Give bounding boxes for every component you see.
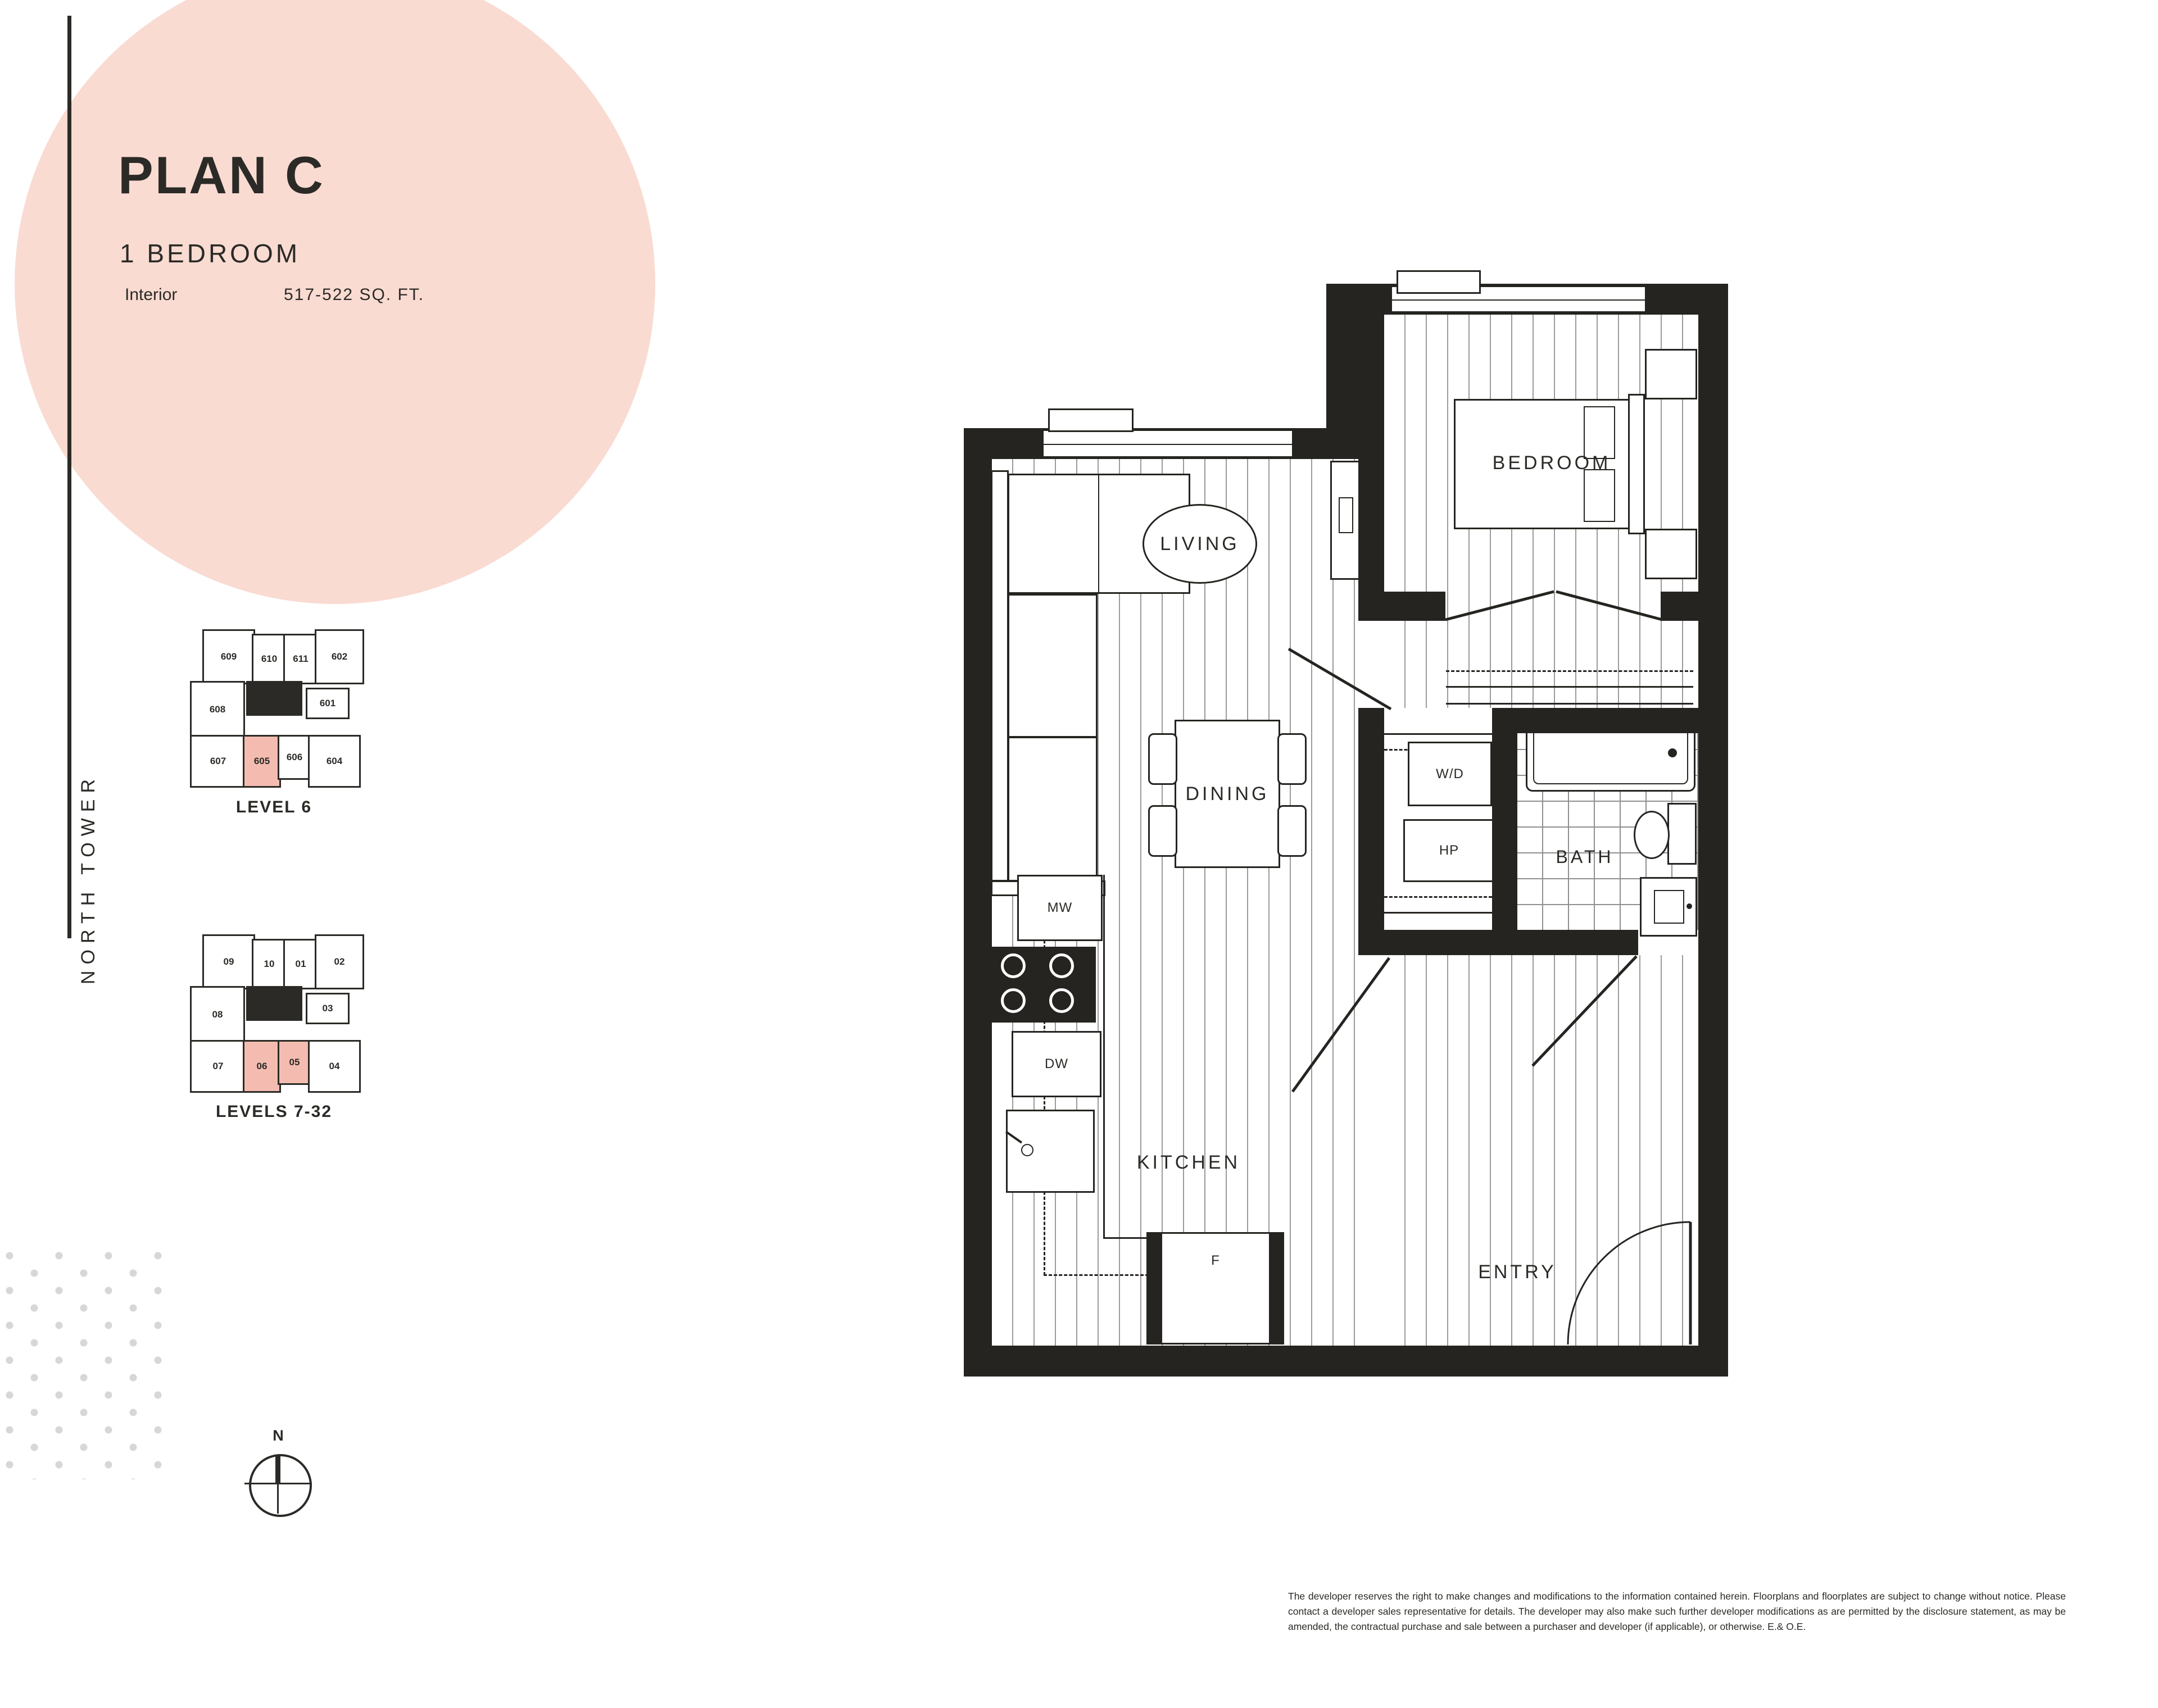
window-head-living: [1048, 408, 1134, 432]
keyplan-unit: 606: [278, 735, 311, 780]
vertical-rule: [67, 16, 71, 938]
keyplan-unit: 608: [190, 681, 245, 738]
keyplan-core: [246, 986, 302, 1021]
compass-axis-vertical: [277, 1483, 279, 1514]
keyplan-unit: 07: [190, 1040, 246, 1093]
keyplan-unit: 604: [308, 735, 361, 788]
bath-door-leaf: [1533, 956, 1636, 1066]
keyplan-unit: 01: [283, 939, 318, 989]
interior-area-value: 517-522 SQ. FT.: [284, 285, 424, 305]
kitchen-label: KITCHEN: [1127, 1152, 1250, 1174]
bedroom-door-leaf: [1556, 592, 1662, 620]
entry-door-arc: [1568, 1222, 1690, 1344]
window-head-bedroom: [1397, 270, 1481, 294]
keyplan-unit: 09: [202, 934, 255, 989]
compass-circle: [249, 1454, 312, 1517]
tower-name-label: NORTH TOWER: [78, 720, 114, 984]
interior-label: Interior: [125, 285, 177, 305]
keyplan-unit-highlighted: 06: [243, 1040, 281, 1093]
door-swing-overlay: [964, 284, 1728, 1377]
keyplan-unit-highlighted: 05: [278, 1040, 311, 1085]
keyplan-unit: 607: [190, 735, 246, 788]
compass-icon: N: [242, 1427, 315, 1523]
plan-type-subtitle: 1 BEDROOM: [120, 238, 300, 269]
keyplan-unit: 03: [306, 993, 350, 1024]
keyplan-levels-7-32: 09 10 01 02 08 03 07 06 05 04: [185, 930, 362, 1093]
keyplan-unit: 10: [252, 939, 287, 989]
bedroom-label: BEDROOM: [1492, 452, 1611, 474]
keyplan-unit: 610: [252, 634, 287, 684]
keyplan-unit: 04: [308, 1040, 361, 1093]
keyplan-unit: 611: [283, 634, 318, 684]
compass-axis-horizontal: [244, 1483, 312, 1484]
page-title: PLAN C: [118, 145, 325, 206]
keyplan-unit: 02: [315, 934, 364, 989]
keyplan-unit: 602: [315, 629, 364, 684]
keyplan-core: [246, 681, 302, 716]
compass-north-label: N: [242, 1427, 315, 1444]
keyplan-unit: 609: [202, 629, 255, 684]
compass-needle: [275, 1455, 280, 1484]
closet-door-leaf: [1293, 958, 1389, 1092]
keyplan-levels-7-32-caption: LEVELS 7-32: [185, 1102, 362, 1121]
bedroom-door-leaf: [1445, 592, 1554, 620]
bath-label: BATH: [1543, 847, 1627, 867]
legal-disclaimer: The developer reserves the right to make…: [1288, 1589, 2066, 1634]
dot-pattern: [6, 1252, 174, 1479]
unit-floor-plan: LIVING BEDROOM DINING W/D HP BATH: [964, 284, 1728, 1377]
keyplan-level-6-caption: LEVEL 6: [185, 798, 362, 817]
entry-label: ENTRY: [1458, 1261, 1576, 1283]
keyplan-unit: 08: [190, 986, 245, 1043]
keyplan-unit: 601: [306, 688, 350, 719]
keyplan-level-6: 609 610 611 602 608 601 607 605 606 604: [185, 625, 362, 788]
hall-door-leaf: [1289, 649, 1391, 709]
keyplan-unit-highlighted: 605: [243, 735, 281, 788]
